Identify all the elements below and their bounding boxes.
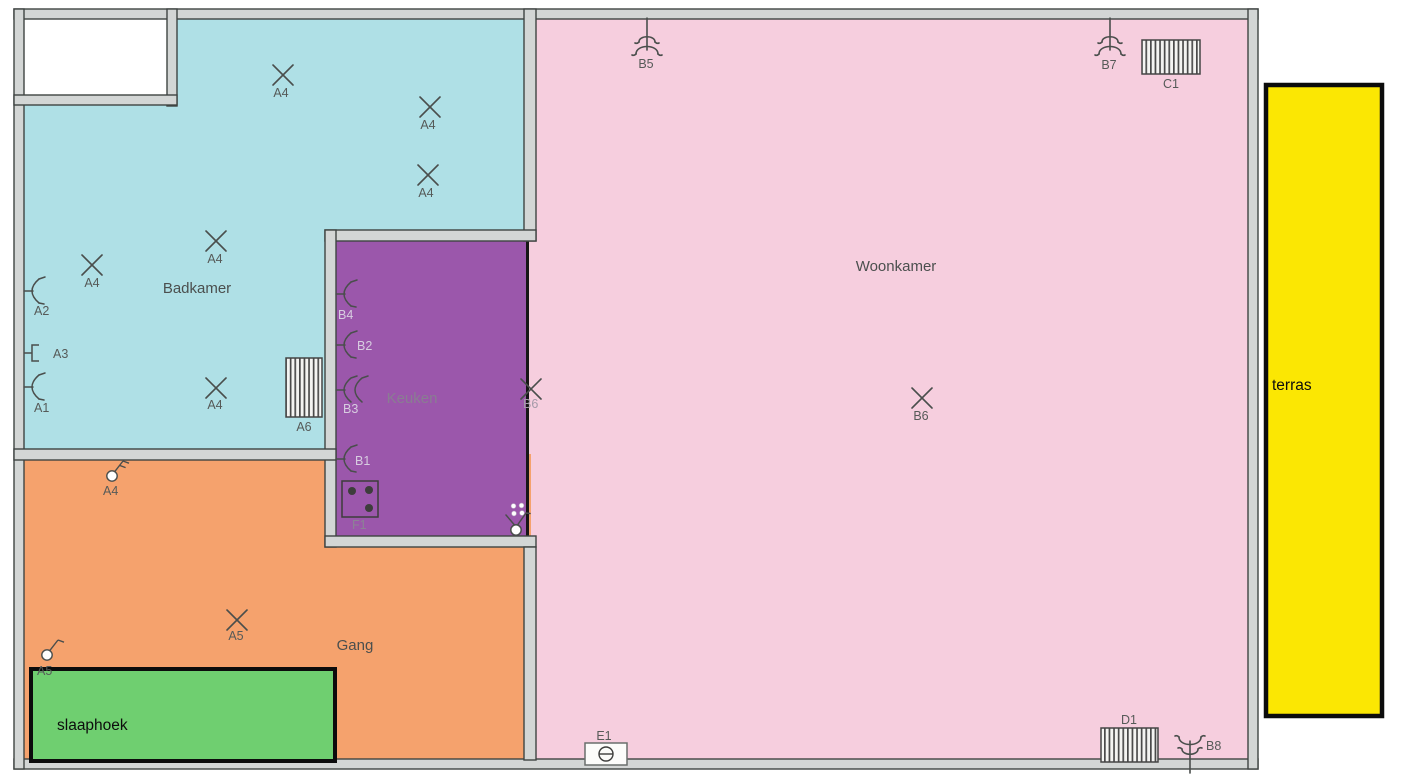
symbol-label: B1 <box>355 454 370 468</box>
symbol-label: A4 <box>207 398 222 412</box>
room-label-gang: Gang <box>337 637 374 654</box>
wall-segment <box>524 9 536 241</box>
symbol-label: D1 <box>1121 713 1137 727</box>
keuken-divider-line <box>526 241 529 536</box>
symbol-label: B6 <box>523 397 538 411</box>
room-woonkamer <box>529 14 1253 764</box>
symbol-label: A4 <box>103 484 118 498</box>
symbol-label: A4 <box>273 86 288 100</box>
wall-segment <box>325 230 336 547</box>
symbol-label: A6 <box>296 420 311 434</box>
symbol-label: A4 <box>418 186 433 200</box>
symbol-label: C1 <box>1163 77 1179 91</box>
wall-segment <box>524 547 536 760</box>
symbol-label: B2 <box>357 339 372 353</box>
symbol-label: B5 <box>638 57 653 71</box>
wall-box-E1-icon <box>585 743 627 765</box>
room-label-woonkamer: Woonkamer <box>856 258 937 275</box>
radiator-D1 <box>1101 728 1158 762</box>
floor-plan-svg: A4 A4 A4 A4 A4 A2 A3 A1 A4 A6 B5 B7 C1 B… <box>0 0 1401 780</box>
symbol-label: A2 <box>34 304 49 318</box>
symbol-label: A4 <box>420 118 435 132</box>
symbol-label: B6 <box>913 409 928 423</box>
room-label-badkamer: Badkamer <box>163 280 231 297</box>
symbol-label: B3 <box>343 402 358 416</box>
storage-niche <box>19 14 169 98</box>
symbol-label: A3 <box>53 347 68 361</box>
symbol-label: A5 <box>228 629 243 643</box>
symbol-label: F1 <box>352 518 367 532</box>
wall-segment <box>167 9 177 106</box>
wall-segment <box>14 449 336 460</box>
symbol-label: B4 <box>338 308 353 322</box>
symbol-label: E1 <box>596 729 611 743</box>
room-label-slaaphoek: slaaphoek <box>57 717 128 734</box>
symbol-label: A4 <box>207 252 222 266</box>
room-label-terras: terras <box>1272 377 1312 394</box>
wall-segment <box>14 95 177 105</box>
symbol-label: A1 <box>34 401 49 415</box>
symbol-label: A4 <box>84 276 99 290</box>
wall-segment <box>14 9 24 769</box>
wall-segment <box>14 9 1258 19</box>
radiator-C1 <box>1142 40 1200 74</box>
wall-segment <box>325 230 536 241</box>
wall-segment <box>1248 9 1258 769</box>
symbol-label: A5 <box>37 664 52 678</box>
room-label-keuken: Keuken <box>387 390 438 407</box>
radiator-A6 <box>286 358 322 417</box>
wall-segment <box>325 536 536 547</box>
symbol-label: B7 <box>1101 58 1116 72</box>
floor-plan-canvas: A4 A4 A4 A4 A4 A2 A3 A1 A4 A6 B5 B7 C1 B… <box>0 0 1401 780</box>
symbol-label: B8 <box>1206 739 1221 753</box>
room-keuken <box>335 236 529 542</box>
room-slaaphoek <box>31 669 335 761</box>
room-terras <box>1266 85 1382 716</box>
